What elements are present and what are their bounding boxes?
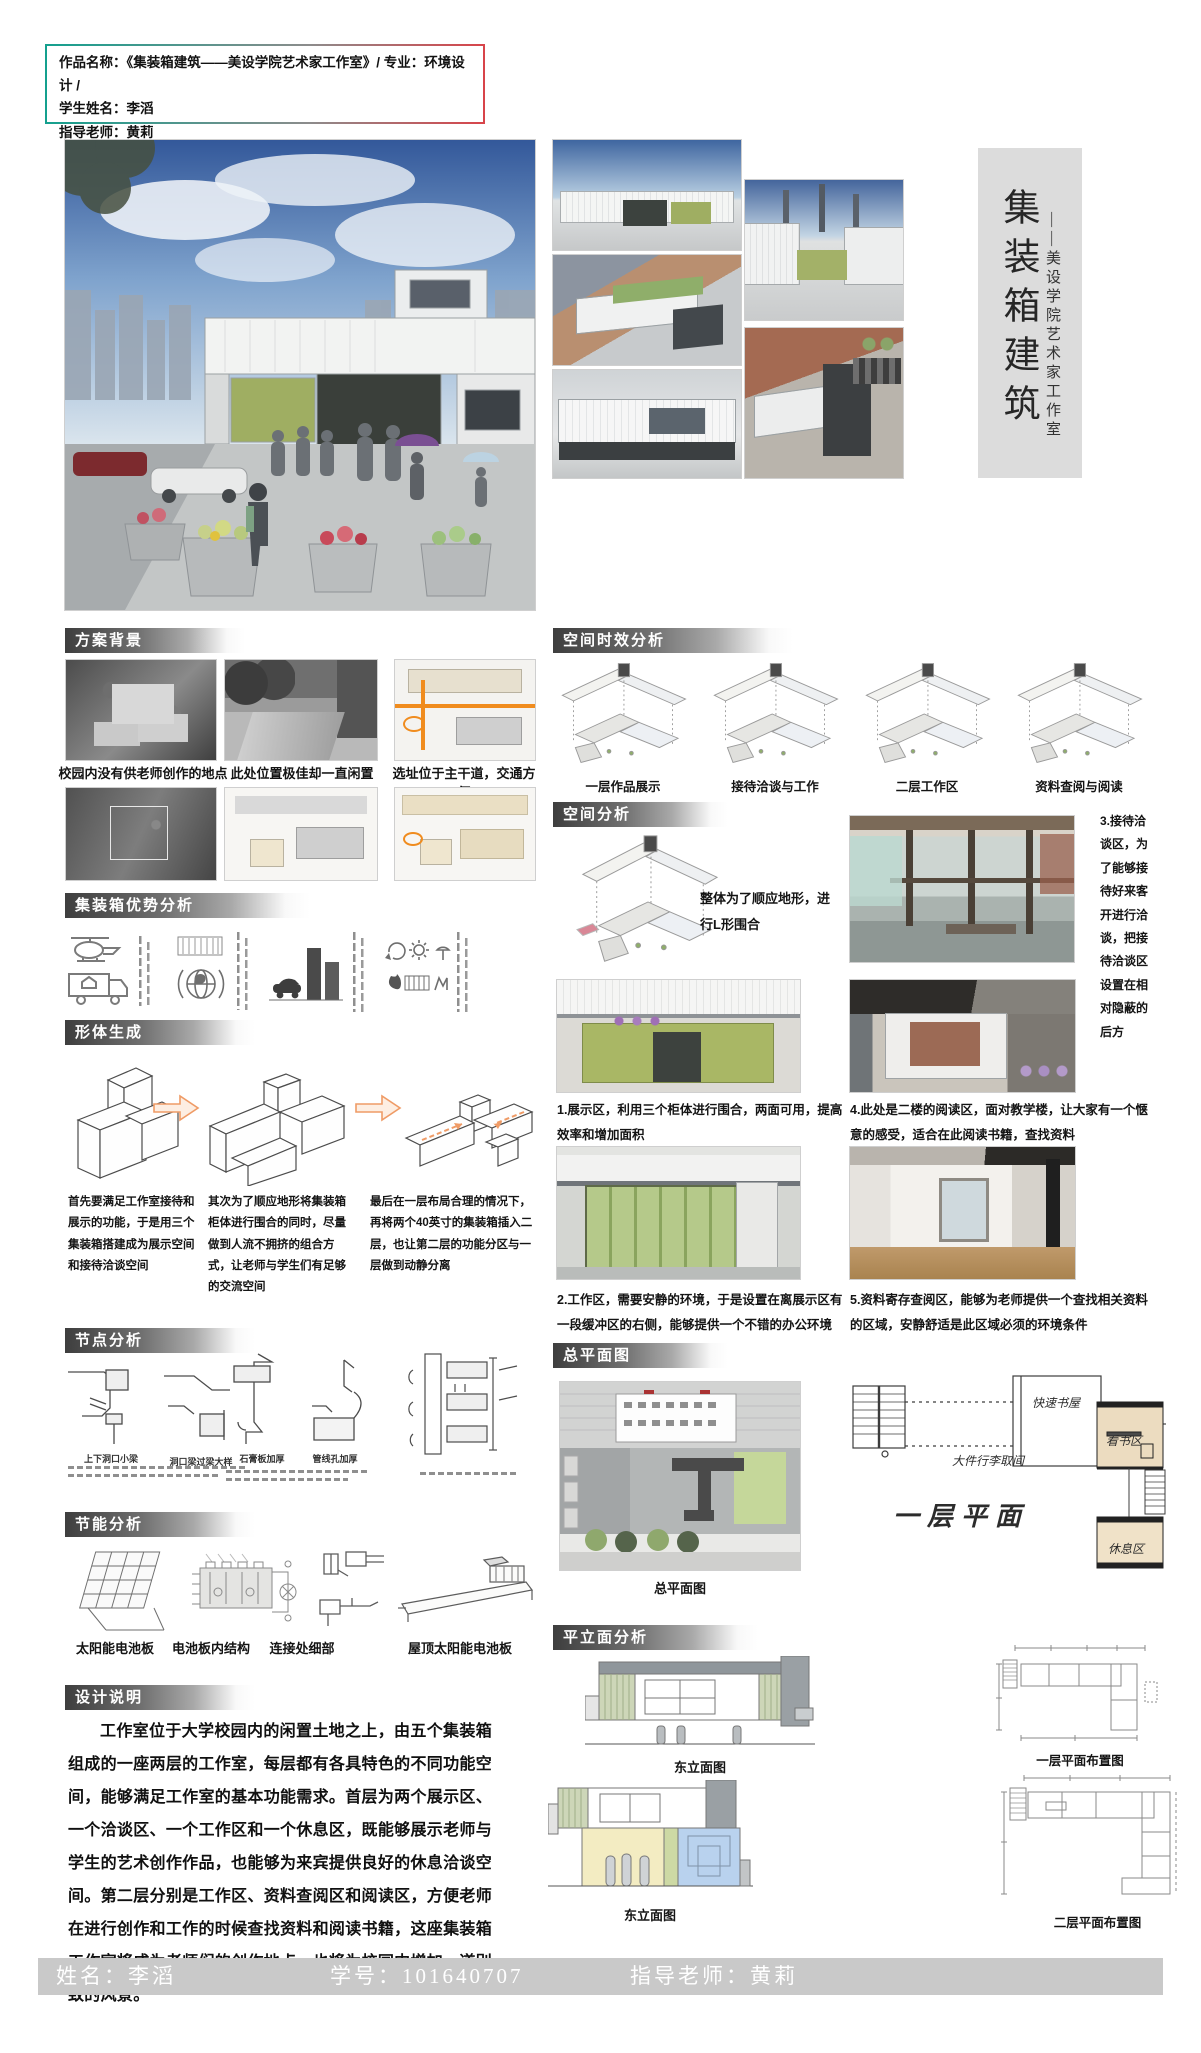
- rendering-a3-container: [559, 400, 735, 442]
- site-photo-2-path: [237, 712, 345, 760]
- node-sketch-2: [162, 1366, 234, 1448]
- master-plan-drawing: [560, 1382, 800, 1570]
- connection-detail-diagram: [318, 1548, 384, 1632]
- advantage-note-4: [457, 932, 470, 1012]
- rendering-b1-chimney2: [819, 184, 825, 232]
- section-title-time-analysis: 空间时效分析: [553, 628, 793, 653]
- footer-student-id: 学号：101640707: [330, 1958, 524, 1995]
- east-elevation-2-drawing: [548, 1780, 753, 1898]
- form-sketch-2: [202, 1068, 352, 1186]
- site-photo-2-tree: [225, 660, 295, 706]
- footer-bar: 姓名：李滔 学号：101640707 指导老师：黄莉: [38, 1958, 1163, 1995]
- time-axon-4: [1009, 656, 1149, 771]
- rendering-b1-leftwall: [745, 224, 799, 284]
- rendering-a3-image: [553, 370, 741, 478]
- space-photo-3-brick: [1040, 834, 1074, 894]
- background-caption-2: 此处位置极佳却一直闲置: [222, 763, 382, 782]
- energy-caption-2: 电池板内结构: [155, 1638, 267, 1657]
- second-floor-plan-caption: 二层平面布置图: [1000, 1912, 1195, 1931]
- space-photo-3-beam: [850, 816, 1074, 830]
- space-axon-note: 整体为了顺应地形，进行L形围合: [700, 886, 838, 938]
- poster: 作品名称：《集装箱建筑——美设学院艺术家工作室》/ 专业：环境设计 / 学生姓名…: [0, 0, 1201, 2053]
- time-caption-3: 二层工作区: [857, 776, 997, 795]
- footer-teacher: 指导老师：黄莉: [630, 1958, 798, 1995]
- space-photo-4-flowers: [1018, 1064, 1070, 1078]
- site-plan-2-band: [235, 796, 367, 814]
- site-plan-1-road-v: [421, 680, 425, 750]
- first-floor-plan-caption: 一层平面布置图: [990, 1750, 1170, 1769]
- background-caption-1: 校园内没有供老师创作的地点: [58, 763, 228, 782]
- node-sketch-3: [228, 1352, 296, 1450]
- title-strip: 集装箱建筑 ——美设学院艺术家工作室: [978, 148, 1082, 478]
- time-axon-3: [857, 656, 997, 771]
- space-photo-1-opening: [653, 1032, 701, 1082]
- space-caption-2: 2.工作区，需要安静的环境，于是设置在离展示区有一段缓冲区的右侧，能够提供一个不…: [557, 1288, 851, 1338]
- energy-caption-1: 太阳能电池板: [60, 1638, 170, 1657]
- hero-rendering-art: [65, 140, 535, 610]
- space-photo-2-corner: [737, 1183, 777, 1269]
- site-photo-3-outline: [110, 806, 168, 860]
- space-photo-4-brick: [910, 1022, 980, 1066]
- space-photo-2-glass: [587, 1187, 737, 1267]
- space-caption-3: 3.接待洽谈区，为了能够接待好来客开进行洽谈，把接待洽谈区设置在相对隐蔽的后方: [1100, 810, 1154, 1044]
- site-plan-1-road-h: [395, 704, 535, 708]
- master-plan-caption: 总平面图: [600, 1578, 760, 1597]
- advantage-icons-row: [65, 930, 535, 1012]
- work-title-line: 作品名称：《集装箱建筑——美设学院艺术家工作室》/ 专业：环境设计 /: [59, 51, 471, 97]
- rendering-b1-image: [745, 180, 903, 320]
- rendering-a1-door: [623, 200, 667, 226]
- section-title-master-plan: 总平面图: [553, 1343, 728, 1368]
- form-arrow-2: [354, 1093, 402, 1123]
- space-photo-3-image: [850, 816, 1074, 962]
- site-plan-2-block: [297, 828, 363, 858]
- rendering-a1-green: [671, 202, 711, 224]
- section-title-space-analysis: 空间分析: [553, 802, 728, 827]
- site-plan-3-marker: [403, 832, 423, 846]
- space-photo-5-ceiling: [850, 1147, 1075, 1165]
- east-elevation-1-caption: 东立面图: [615, 1757, 785, 1776]
- form-paragraph-1: 首先要满足工作室接待和展示的功能，于是用三个集装箱搭建成为展示空间和接待洽谈空间: [68, 1192, 200, 1277]
- rendering-b1-green: [797, 250, 847, 280]
- node-note-2: [226, 1470, 368, 1482]
- site-plan-3-image: [395, 788, 535, 880]
- space-photo-3-bench: [946, 924, 1016, 934]
- site-photo-1-buildings: [112, 684, 174, 724]
- sketch-label-2: 大件行李取间: [952, 1452, 1024, 1469]
- advantage-note-3: [353, 932, 366, 1012]
- helicopter-icon: [65, 934, 127, 964]
- time-caption-4: 资料查阅与阅读: [1009, 776, 1149, 795]
- form-paragraph-2: 其次为了顺应地形将集装箱柜体进行围合的同时，尽量做到人流不拥挤的组合方式，让老师…: [208, 1192, 346, 1298]
- east-elevation-2-caption: 东立面图: [560, 1905, 740, 1924]
- rendering-a2-dark: [673, 304, 723, 349]
- time-axon-1: [553, 656, 693, 771]
- space-photo-1-upper: [557, 980, 800, 1018]
- section-title-description: 设计说明: [65, 1685, 255, 1710]
- space-photo-5-window: [942, 1181, 986, 1239]
- header-info-box: 作品名称：《集装箱建筑——美设学院艺术家工作室》/ 专业：环境设计 / 学生姓名…: [45, 44, 485, 124]
- energy-caption-4: 屋顶太阳能电池板: [385, 1638, 535, 1657]
- site-plan-3-block: [461, 830, 523, 858]
- solar-panel-diagram: [68, 1544, 178, 1634]
- site-plan-1-image: [395, 660, 535, 760]
- section-title-energy: 节能分析: [65, 1512, 255, 1537]
- energy-caption-3: 连接处细部: [256, 1638, 348, 1657]
- node-caption-1: 上下洞口小梁: [66, 1452, 156, 1465]
- node-sketch-4: [300, 1358, 372, 1450]
- node-sketch-5: [395, 1350, 520, 1460]
- rendering-b2-image: [745, 328, 903, 478]
- footer-name: 姓名：李滔: [56, 1958, 176, 1995]
- site-plan-1-block2: [457, 718, 521, 744]
- student-name-line: 学生姓名：李滔: [59, 97, 471, 120]
- site-photo-2-building: [337, 660, 377, 738]
- eco-icons: [381, 938, 451, 1002]
- cost-barchart-icon: [267, 942, 345, 1004]
- site-photo-3-image: [66, 788, 216, 880]
- space-photo-2-ground: [557, 1267, 800, 1279]
- advantage-note-1: [139, 936, 152, 1006]
- sketch-label-1: 快速书屋: [1032, 1394, 1080, 1411]
- rendering-a2-image: [553, 255, 741, 365]
- space-photo-2-image: [557, 1147, 800, 1279]
- sketch-label-3: 看书区: [1106, 1432, 1142, 1449]
- hero-rendering-image: [65, 140, 535, 610]
- space-photo-5-image: [850, 1147, 1075, 1279]
- time-axon-2: [705, 656, 845, 771]
- rendering-a1-image: [553, 140, 741, 250]
- node-sketch-1: [66, 1358, 156, 1448]
- site-photo-2-image: [225, 660, 377, 760]
- poster-title: 集装箱建筑: [990, 188, 1044, 448]
- space-photo-2-canopy: [557, 1155, 800, 1186]
- space-photo-1-image: [557, 980, 800, 1092]
- container-panel-icon: [177, 936, 223, 956]
- rendering-b1-rightwall: [845, 228, 903, 284]
- site-plan-2-room: [251, 840, 283, 866]
- site-plan-1-block1: [409, 670, 521, 692]
- sketch-label-4: 休息区: [1108, 1540, 1144, 1557]
- form-arrow-1: [152, 1093, 200, 1123]
- form-sketch-3: [402, 1078, 535, 1186]
- space-caption-5: 5.资料寄存查阅区，能够为老师提供一个查找相关资料的区域，安静舒适是此区域必须的…: [850, 1288, 1158, 1338]
- form-paragraph-3: 最后在一层布局合理的情况下，再将两个40英寸的集装箱插入二层，也让第二层的功能分…: [370, 1192, 535, 1277]
- space-photo-5-floor: [850, 1247, 1075, 1279]
- rendering-b2-roofgrid: [853, 358, 901, 384]
- space-photo-4-ceiling: [850, 980, 1075, 1014]
- rendering-b1-chimney3: [853, 194, 859, 232]
- section-title-form: 形体生成: [65, 1020, 255, 1045]
- advantage-note-2: [237, 932, 250, 1010]
- section-title-advantage: 集装箱优势分析: [65, 893, 310, 918]
- rendering-a3-band: [559, 442, 735, 460]
- space-caption-4: 4.此处是二楼的阅读区，面对教学楼，让大家有一个惬意的感受，适合在此阅读书籍，查…: [850, 1098, 1158, 1148]
- space-caption-1: 1.展示区，利用三个柜体进行围合，两面可用，提高效率和增加面积: [557, 1098, 851, 1148]
- globe-icon: [177, 960, 225, 1008]
- space-photo-1-flowers: [611, 1016, 671, 1026]
- battery-structure-diagram: [192, 1548, 300, 1632]
- site-plan-3-room: [421, 840, 451, 864]
- rendering-b2-trees: [861, 336, 901, 352]
- site-plan-2-image: [225, 788, 377, 880]
- node-caption-4: 管线孔加厚: [296, 1452, 374, 1465]
- site-plan-3-band: [403, 796, 527, 814]
- sketch-plan-title: 一层平面: [893, 1496, 1029, 1533]
- space-photo-3-glass: [850, 836, 902, 906]
- site-photo-1-image: [66, 660, 216, 760]
- roof-solar-diagram: [398, 1556, 535, 1628]
- time-caption-1: 一层作品展示: [553, 776, 693, 795]
- section-title-background: 方案背景: [65, 628, 245, 653]
- east-elevation-1-drawing: [585, 1656, 815, 1752]
- poster-subtitle: ——美设学院艺术家工作室: [1042, 212, 1063, 468]
- space-photo-4-image: [850, 980, 1075, 1092]
- node-caption-3: 石膏板加厚: [226, 1452, 298, 1465]
- section-title-plan-elevation: 平立面分析: [553, 1625, 758, 1650]
- node-note-1: [68, 1466, 246, 1478]
- rendering-a3-window: [649, 408, 705, 434]
- site-plan-1-marker: [403, 716, 425, 732]
- section-title-node: 节点分析: [65, 1328, 255, 1353]
- node-note-3: [420, 1472, 516, 1477]
- time-caption-2: 接待洽谈与工作: [705, 776, 845, 795]
- second-floor-plan-drawing: [1000, 1772, 1195, 1900]
- first-floor-plan-drawing: [995, 1642, 1163, 1746]
- truck-icon: [65, 970, 131, 1006]
